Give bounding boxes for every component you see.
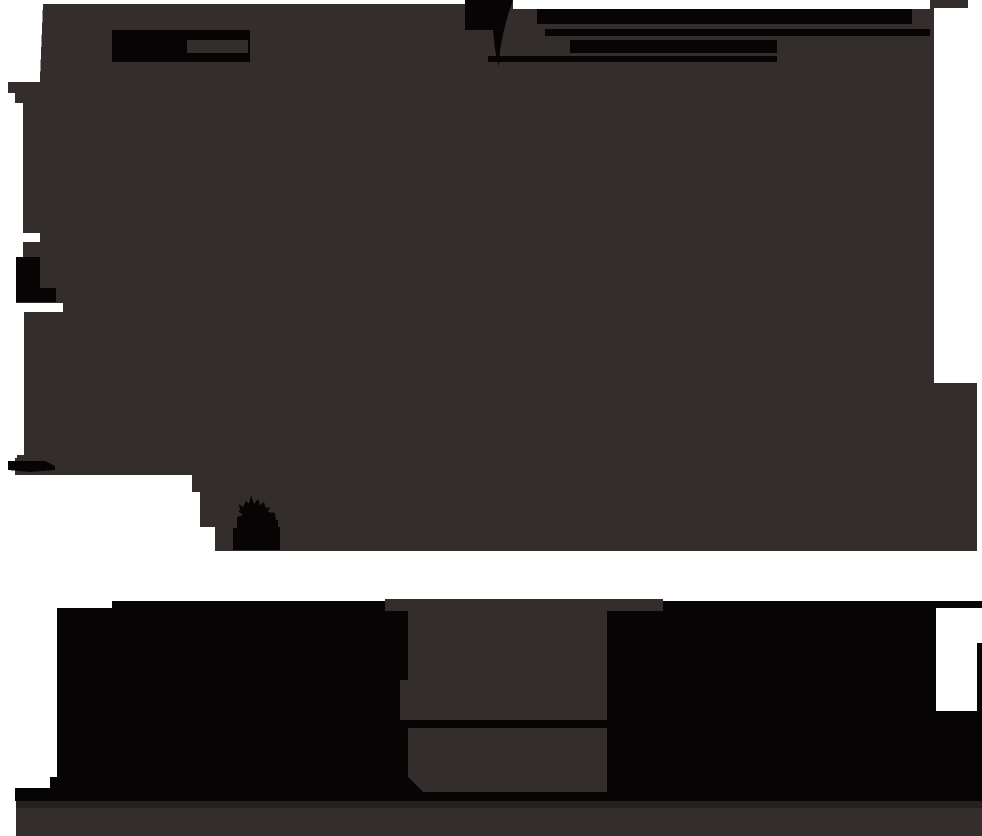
bar-a — [537, 9, 912, 24]
photo-canvas — [0, 0, 982, 836]
white-notch — [936, 608, 982, 711]
stand-base — [408, 728, 607, 792]
corner-bits — [8, 461, 55, 472]
stand-body — [400, 611, 607, 720]
stand-top — [385, 599, 663, 611]
floor-band — [16, 801, 982, 808]
bar-d — [488, 56, 777, 62]
device-slot — [187, 40, 248, 53]
bar-b — [545, 29, 930, 36]
photo-stage — [0, 0, 982, 836]
bar-c — [570, 40, 777, 53]
floor — [16, 808, 982, 836]
dark-mass — [8, 0, 977, 551]
